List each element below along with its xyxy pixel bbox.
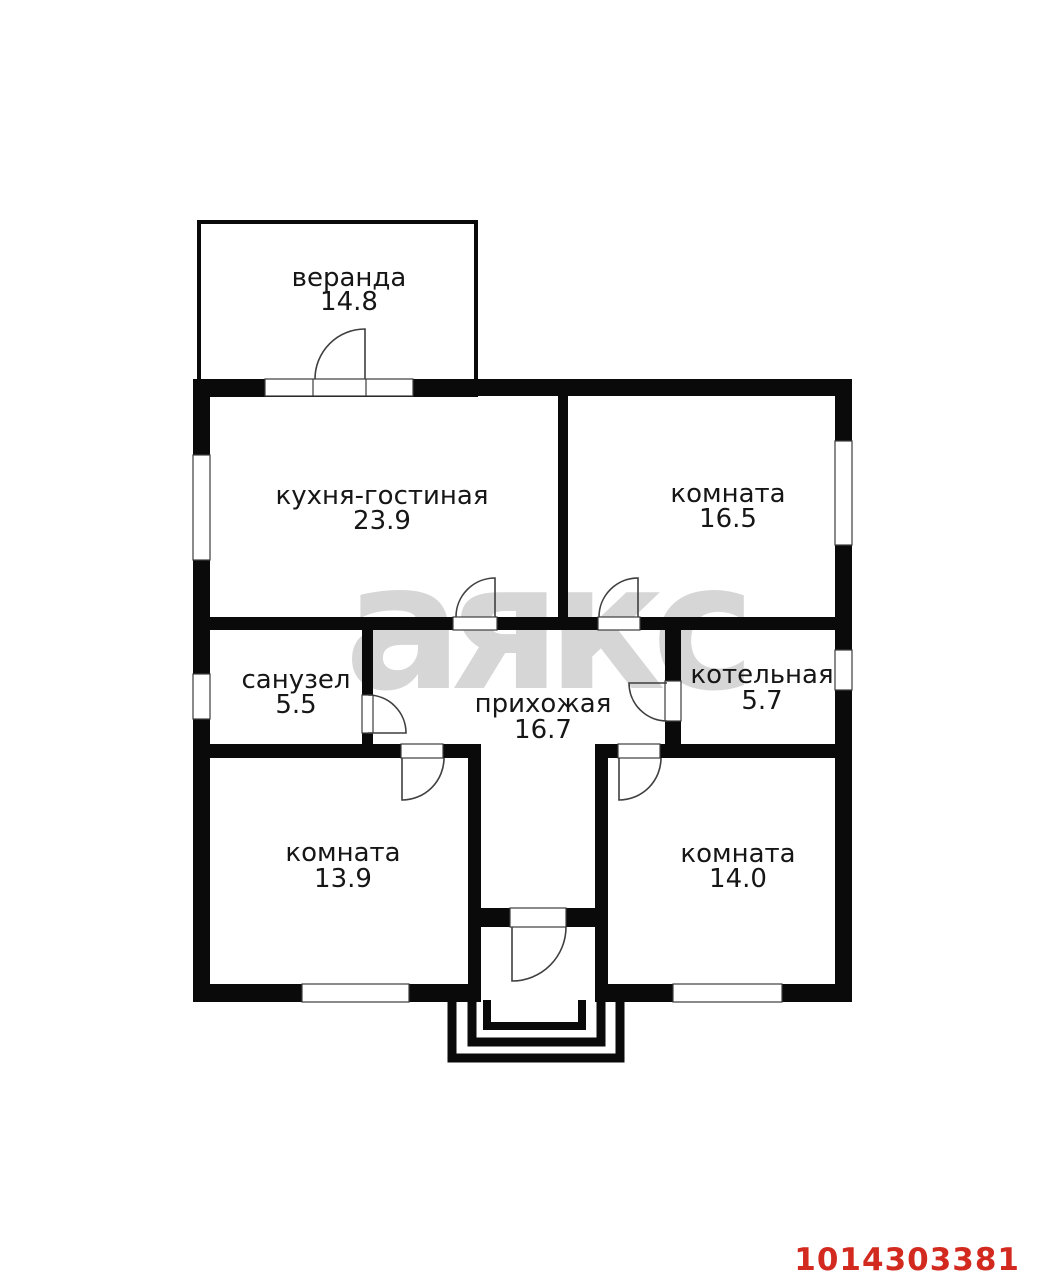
wall-segment xyxy=(497,617,598,630)
door-swing-entrance xyxy=(512,927,566,981)
door-sill-entrance xyxy=(510,908,566,927)
wall-segment xyxy=(362,630,373,695)
wall-segment xyxy=(362,733,373,744)
wall-segment xyxy=(595,744,608,1002)
wall-segment xyxy=(566,908,595,927)
door-sill-room-top-right xyxy=(598,617,640,630)
window-room-right xyxy=(835,441,852,545)
room-area: 14.0 xyxy=(709,864,767,894)
wall-segment xyxy=(660,744,835,758)
room-label-room-top-right: комната 16.5 xyxy=(670,479,785,534)
porch-steps xyxy=(452,1000,620,1058)
floor-plan-svg: аякс xyxy=(0,0,1045,1280)
wall-segment xyxy=(468,744,481,1002)
room-area: 5.7 xyxy=(741,686,782,716)
door-sill-bathroom xyxy=(362,695,373,733)
room-area: 13.9 xyxy=(314,864,372,894)
wall-segment xyxy=(443,744,468,758)
door-sill-boiler xyxy=(665,681,681,721)
wall-segment xyxy=(413,379,852,396)
room-area: 14.8 xyxy=(320,287,378,317)
room-label-room-bottom-left: комната 13.9 xyxy=(285,838,400,894)
floor-plan-page: аякс xyxy=(0,0,1045,1280)
wall-segment xyxy=(782,984,852,1002)
window-room-bottom-left xyxy=(302,984,409,1002)
window-bathroom-left xyxy=(193,674,210,719)
wall-segment xyxy=(640,617,835,630)
listing-id: 1014303381 xyxy=(794,1242,1020,1278)
wall-segment xyxy=(193,719,210,1002)
room-area: 23.9 xyxy=(353,506,411,536)
room-area: 5.5 xyxy=(275,690,316,720)
wall-segment xyxy=(835,690,852,1002)
wall-segment xyxy=(481,908,510,927)
window-veranda-band xyxy=(265,379,413,396)
window-boiler-right xyxy=(835,650,852,690)
wall-segment xyxy=(835,379,852,441)
wall-segment xyxy=(665,630,681,681)
window-kitchen-left xyxy=(193,455,210,560)
door-sill-kitchen xyxy=(453,617,497,630)
room-label-bathroom: санузел 5.5 xyxy=(241,665,350,720)
wall-segment xyxy=(193,560,210,674)
room-label-room-bottom-right: комната 14.0 xyxy=(680,839,795,894)
wall-segment xyxy=(193,984,302,1002)
wall-segment xyxy=(210,617,453,630)
wall-segment xyxy=(835,545,852,650)
window-room-bottom-right xyxy=(673,984,782,1002)
room-area: 16.5 xyxy=(699,504,757,534)
door-sill-room-bottom-right xyxy=(618,744,660,758)
door-sill-room-bottom-left xyxy=(401,744,443,758)
door-swing-room-bottom-right xyxy=(619,758,661,800)
wall-segment xyxy=(665,721,681,744)
room-area: 16.7 xyxy=(514,715,572,745)
door-swing-room-bottom-left xyxy=(402,758,444,800)
wall-segment xyxy=(409,984,468,1002)
wall-segment xyxy=(558,396,568,617)
wall-segment xyxy=(608,984,673,1002)
room-label-hallway: прихожая 16.7 xyxy=(475,689,612,745)
porch-step xyxy=(487,1000,582,1026)
wall-segment xyxy=(193,379,210,455)
wall-segment xyxy=(210,744,401,758)
